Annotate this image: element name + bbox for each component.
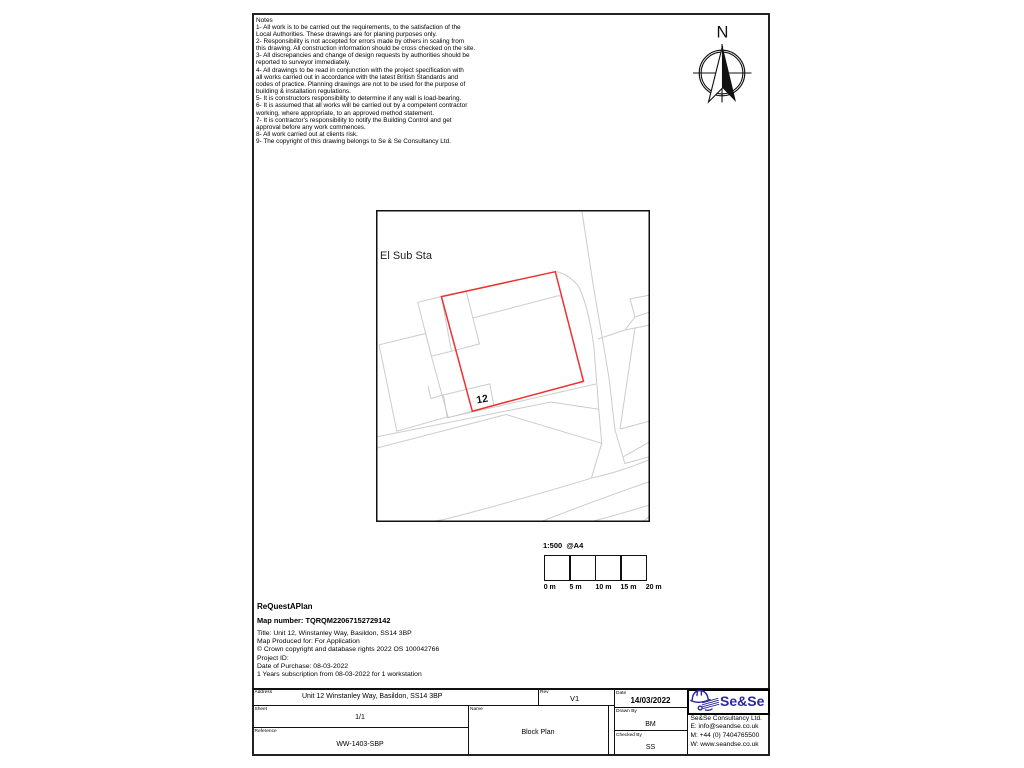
svg-text:Se&Se: Se&Se: [720, 693, 765, 709]
svg-text:El Sub Sta: El Sub Sta: [380, 250, 433, 262]
svg-text:12: 12: [475, 393, 489, 407]
svg-text:N: N: [717, 24, 729, 42]
